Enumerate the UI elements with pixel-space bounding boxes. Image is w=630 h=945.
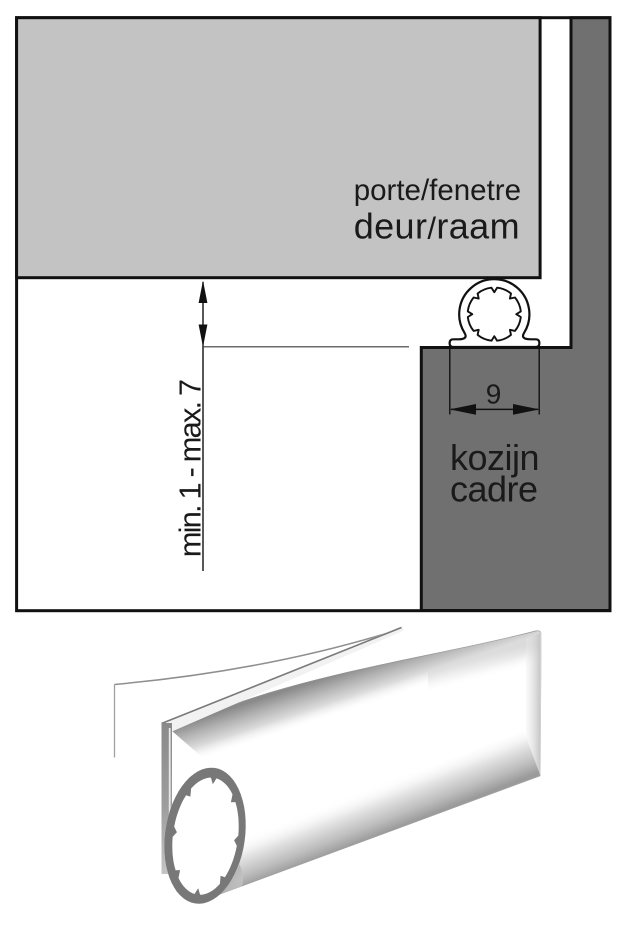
svg-text:porte/fenetre: porte/fenetre — [354, 174, 521, 207]
svg-text:deur/raam: deur/raam — [354, 206, 520, 247]
svg-text:cadre: cadre — [450, 469, 538, 510]
svg-text:min. 1 - max. 7: min. 1 - max. 7 — [173, 380, 208, 557]
svg-text:9: 9 — [486, 379, 502, 410]
